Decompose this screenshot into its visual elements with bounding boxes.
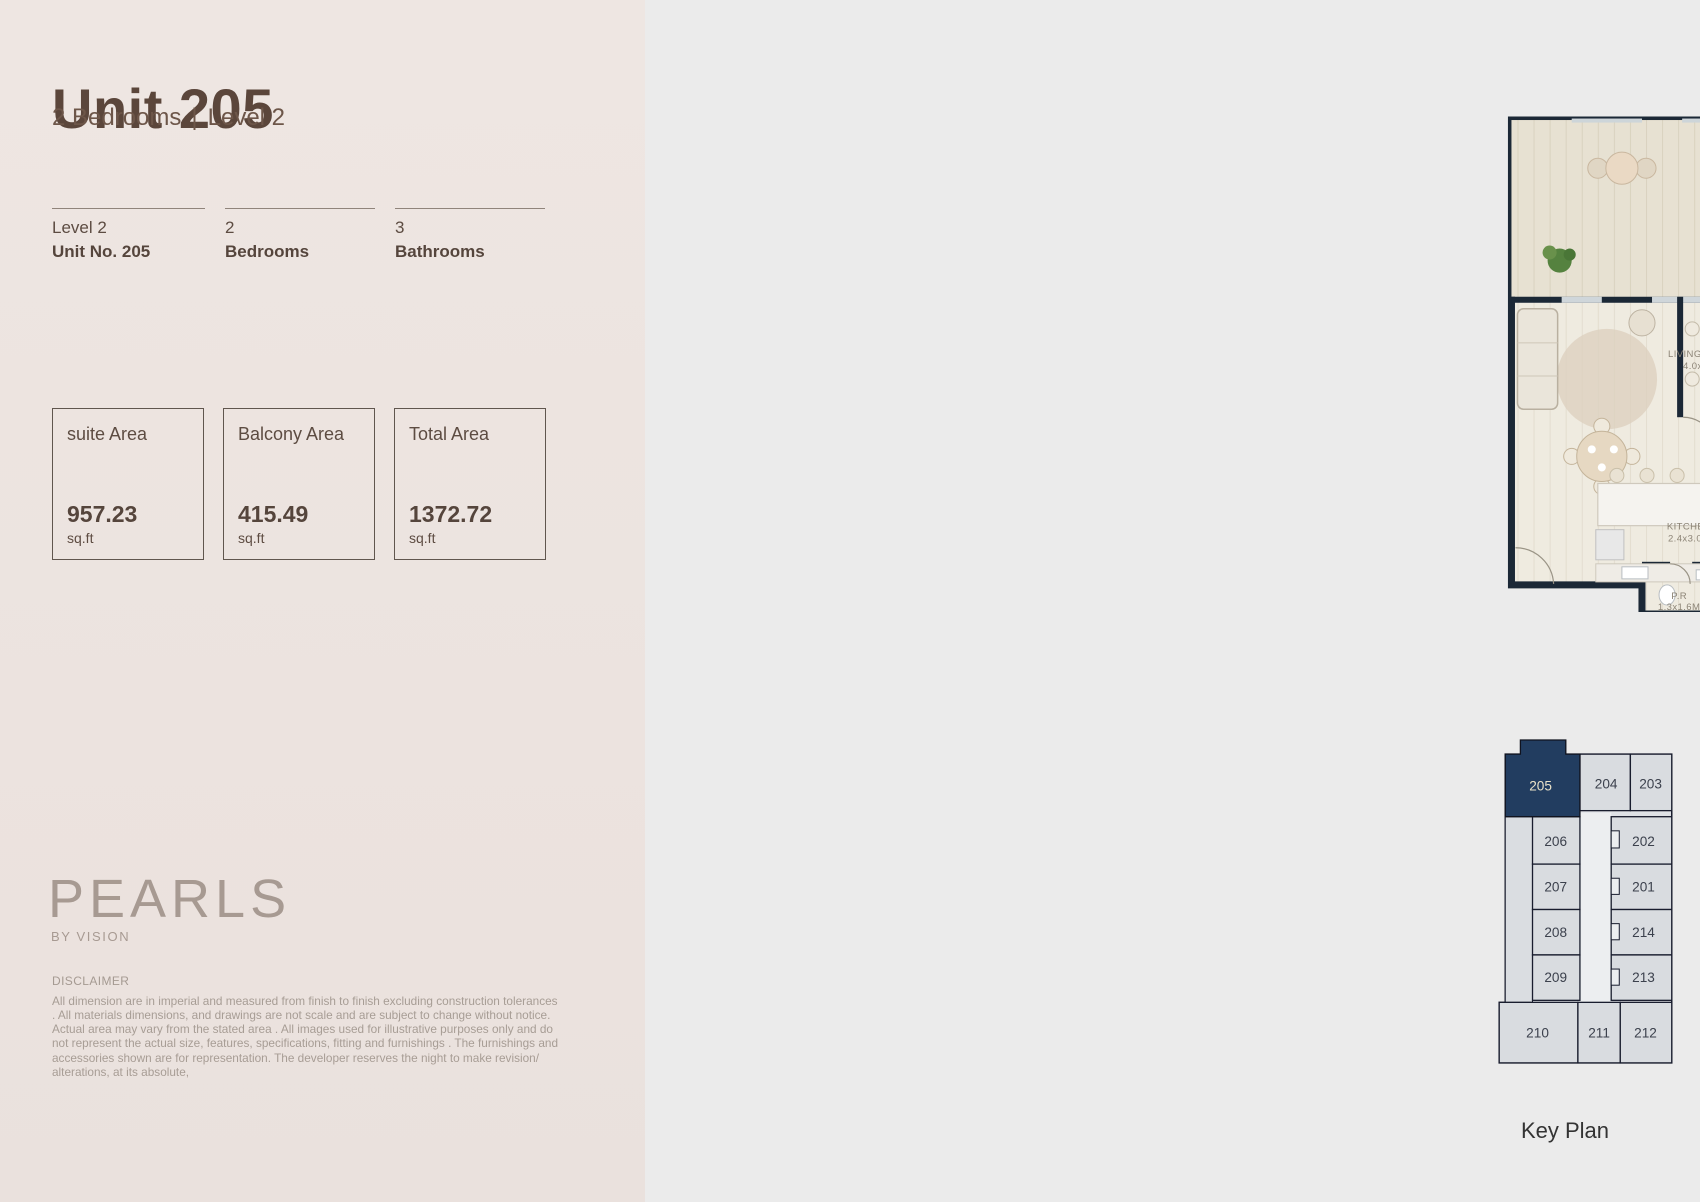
key-plan-caption: Key Plan (1485, 1118, 1645, 1144)
balcony-area-figure: 415.49 sq.ft (238, 501, 360, 546)
suite-area-box: suite Area 957.23 sq.ft (52, 408, 204, 560)
suite-area-figure: 957.23 sq.ft (67, 501, 189, 546)
room-dims-kitchen: 2.4x3.0M (1668, 534, 1700, 545)
room-label-pr: P.R (1671, 591, 1687, 602)
keyplan-unit-209: 209 (1544, 970, 1567, 985)
balcony-area-value: 415.49 (238, 501, 360, 528)
keyplan-unit-211: 211 (1588, 1026, 1610, 1041)
brochure-page: Unit 205 2 Bedrooms|Level 2 Level 2 Unit… (0, 0, 1700, 1202)
suite-area-unit: sq.ft (67, 530, 189, 546)
room-dims-pr: 1.3x1.6M (1658, 602, 1700, 612)
info-col-bathrooms: 3 Bathrooms (395, 208, 545, 262)
keyplan-unit-205: 205 (1529, 778, 1552, 793)
info-unit-number: Unit No. 205 (52, 242, 205, 262)
key-plan: 205 204 203 206 202 207 201 208 214 209 … (1497, 738, 1679, 1076)
disclaimer-body: All dimension are in imperial and measur… (52, 994, 564, 1079)
balcony-area-label: Balcony Area (238, 424, 360, 445)
total-area-unit: sq.ft (409, 530, 531, 546)
info-bathrooms-count: 3 (395, 218, 545, 238)
info-level-label: Level 2 (52, 218, 205, 238)
floor-plan: BALCONY 1.9X10.0M LIVING/DINING 4.0x6.1M… (1500, 110, 1700, 612)
keyplan-unit-210: 210 (1526, 1026, 1549, 1041)
keyplan-unit-203: 203 (1639, 776, 1662, 791)
subtitle-separator: | (181, 104, 207, 131)
keyplan-unit-208: 208 (1544, 925, 1567, 940)
info-bedrooms-count: 2 (225, 218, 375, 238)
subtitle-bedrooms: 2 Bedrooms (52, 104, 181, 131)
total-area-box: Total Area 1372.72 sq.ft (394, 408, 546, 560)
room-label-living: LIVING/DINING (1668, 349, 1700, 360)
unit-info-row: Level 2 Unit No. 205 2 Bedrooms 3 Bathro… (52, 208, 545, 262)
info-bedrooms-label: Bedrooms (225, 242, 375, 262)
info-col-bedrooms: 2 Bedrooms (225, 208, 375, 262)
info-col-level: Level 2 Unit No. 205 (52, 208, 205, 262)
keyplan-unit-214: 214 (1632, 925, 1655, 940)
area-summary-row: suite Area 957.23 sq.ft Balcony Area 415… (52, 408, 565, 560)
disclaimer-heading: DISCLAIMER (52, 974, 564, 988)
total-area-figure: 1372.72 sq.ft (409, 501, 531, 546)
keyplan-core-strip (1505, 817, 1532, 1003)
keyplan-unit-207: 207 (1544, 879, 1567, 894)
keyplan-unit-213: 213 (1632, 970, 1655, 985)
suite-area-value: 957.23 (67, 501, 189, 528)
top-balcony-floor (1511, 120, 1700, 297)
brand-tagline: BY VISION (51, 929, 291, 944)
keyplan-unit-206: 206 (1544, 834, 1567, 849)
keyplan-unit-202: 202 (1632, 834, 1655, 849)
total-area-label: Total Area (409, 424, 531, 445)
disclaimer: DISCLAIMER All dimension are in imperial… (52, 974, 564, 1079)
suite-area-label: suite Area (67, 424, 189, 445)
keyplan-corridor (1580, 813, 1611, 1003)
keyplan-unit-201: 201 (1632, 879, 1655, 894)
page-subtitle: 2 Bedrooms|Level 2 (52, 104, 285, 132)
total-area-value: 1372.72 (409, 501, 531, 528)
room-dims-living: 4.0x6.1M (1683, 361, 1700, 372)
brand-name: PEARLS (48, 872, 291, 926)
info-bathrooms-label: Bathrooms (395, 242, 545, 262)
balcony-area-unit: sq.ft (238, 530, 360, 546)
keyplan-unit-212: 212 (1634, 1026, 1657, 1041)
balcony-area-box: Balcony Area 415.49 sq.ft (223, 408, 375, 560)
info-panel: Unit 205 2 Bedrooms|Level 2 Level 2 Unit… (0, 0, 645, 1202)
keyplan-unit-204: 204 (1595, 776, 1618, 791)
subtitle-level: Level 2 (208, 104, 285, 131)
brand-logo: PEARLS BY VISION (48, 872, 291, 944)
drawings-panel: BALCONY 1.9X10.0M LIVING/DINING 4.0x6.1M… (645, 0, 1700, 1202)
room-label-kitchen: KITCHEN (1667, 522, 1700, 533)
